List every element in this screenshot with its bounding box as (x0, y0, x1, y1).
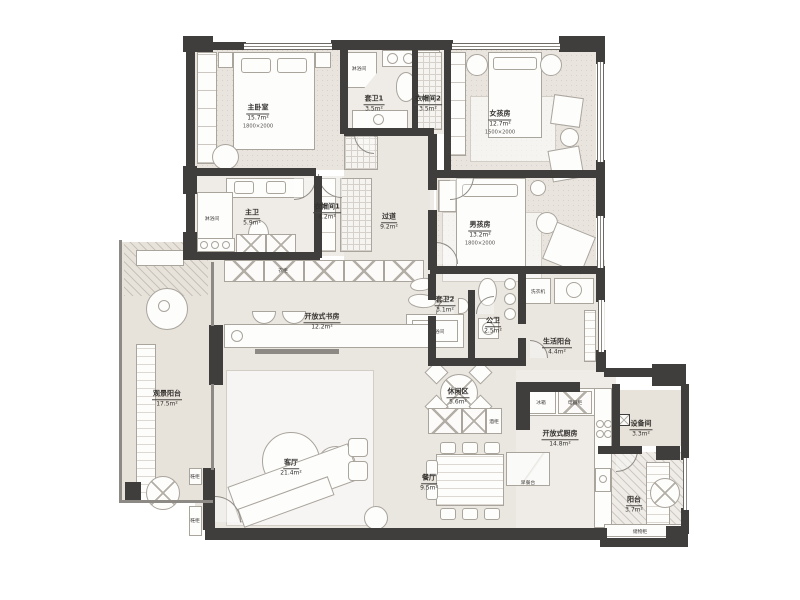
room-label-closet2: 衣帽间2 3.5m² (414, 85, 442, 113)
wall-segment (518, 266, 526, 324)
room-label-girls-room: 女孩房 12.7m² 1500×2000 (482, 101, 518, 136)
pillow (493, 57, 537, 70)
hall-cabinet (304, 260, 344, 282)
wall-segment (516, 382, 580, 392)
dining-table (436, 454, 504, 506)
window-boys-room (597, 216, 604, 268)
ottoman (348, 438, 368, 457)
wall-segment (428, 134, 437, 190)
sideboard (462, 408, 486, 434)
dining-chair (462, 508, 478, 520)
label-hall-cabinet: 衣柜 (278, 266, 288, 273)
balcony-counter (584, 310, 596, 362)
dining-chair (462, 442, 478, 454)
window-master-bedroom (244, 43, 332, 50)
drying-rack (650, 478, 680, 508)
nightstand (315, 52, 331, 68)
wall-segment (468, 290, 475, 360)
label-shower-master: 淋浴间 (205, 214, 219, 221)
shelf-item (504, 293, 516, 305)
label-fridge: 冰箱 (536, 398, 546, 405)
wall-segment (210, 42, 246, 50)
sink-basin (234, 181, 254, 194)
shelf-item (504, 278, 516, 290)
label-shower-ensuite1: 淋浴间 (352, 64, 366, 71)
sink-basin (222, 241, 230, 249)
label-breakfast-bar: 早餐台 (521, 478, 535, 485)
wall-segment (600, 538, 688, 547)
bedside-lamp (530, 180, 546, 196)
kitchen-side-counter (594, 388, 612, 528)
room-label-view-balcony: 观景阳台 17.5m² (152, 380, 182, 408)
lounge-chair (550, 94, 584, 128)
label-shower-ensuite2: 淋浴间 (430, 327, 444, 334)
room-label-balcony: 阳台 3.7m² (625, 486, 643, 514)
room-label-ensuite2: 套卫2 3.1m² (435, 286, 456, 314)
wall-segment (652, 364, 686, 386)
wall-segment (428, 358, 526, 366)
ottoman (348, 461, 368, 481)
monitor-strip (255, 349, 339, 354)
dimension-girls-wall: 1100 (445, 140, 452, 155)
label-storage-cabinet: 储物柜 (633, 527, 647, 534)
balcony-rail (119, 240, 122, 502)
closet1-rack (340, 178, 372, 252)
wardrobe-master (197, 52, 217, 164)
wall-segment (186, 192, 195, 234)
stove-burner (596, 420, 604, 428)
label-wine-cabinet: 酒柜 (489, 417, 499, 424)
armchair (212, 144, 239, 170)
wall-segment (196, 252, 320, 260)
room-label-leisure-area: 休闲区 5.6m² (447, 378, 470, 406)
balcony-rail (119, 500, 213, 503)
wall-bottom (205, 528, 607, 540)
balcony-bench (136, 250, 184, 266)
room-label-open-kitchen: 开放式厨房 14.8m² (542, 420, 579, 448)
pillow (241, 58, 271, 73)
bedside-plant (466, 54, 488, 76)
wall-segment (344, 128, 434, 136)
room-label-master-bedroom: 主卧室 15.7m² 1800×2000 (240, 95, 276, 130)
dining-chair (484, 508, 500, 520)
wall-segment (596, 42, 605, 64)
room-label-open-study: 开放式书房 12.2m² (304, 303, 341, 331)
wall-segment (428, 210, 437, 270)
room-label-dining-room: 餐厅 9.5m² (420, 464, 438, 492)
room-label-hallway: 过道 9.2m² (380, 203, 398, 231)
room-label-service-balcony: 生活阳台 4.4m² (542, 328, 572, 356)
wall-segment (196, 168, 316, 176)
room-label-master-bath: 主卫 5.9m² (243, 199, 261, 227)
side-table (560, 128, 579, 147)
room-label-boys-room: 男孩房 13.2m² 1800×2000 (462, 212, 498, 247)
sideboard (428, 408, 462, 434)
wall-segment (340, 44, 348, 134)
glass-door-track (211, 262, 214, 326)
sink-basin (373, 114, 384, 125)
room-label-ensuite1: 套卫1 3.5m² (364, 85, 385, 113)
dining-chair (440, 442, 456, 454)
stove-burner (596, 430, 604, 438)
wall-pillar (183, 166, 197, 194)
label-shoe-cabinet-1: 鞋柜 (190, 472, 200, 479)
wall-segment (430, 266, 602, 274)
wall-segment (436, 170, 596, 178)
sink-basin (211, 241, 219, 249)
room-label-guest-bath: 公卫 2.5m² (484, 307, 502, 335)
glass-door-track (211, 384, 214, 470)
sink-basin (387, 53, 398, 64)
wall-pillar (125, 482, 141, 502)
room-label-equipment-room: 设备间 3.3m² (630, 410, 653, 438)
stove-burner (604, 420, 612, 428)
window-balcony-side (683, 458, 689, 510)
shelf-item (504, 308, 516, 320)
label-washer: 洗衣机 (531, 287, 545, 294)
floor-lamp (364, 506, 388, 530)
dining-chair (440, 508, 456, 520)
wall-segment (596, 160, 605, 218)
room-label-closet1: 衣帽间1 4.2m² (313, 193, 341, 221)
hall-cabinet (224, 260, 264, 282)
wall-pillar (209, 325, 223, 385)
wall-segment (203, 468, 215, 530)
wall-pillar (183, 232, 197, 260)
dining-chair (484, 442, 500, 454)
stove-burner (604, 430, 612, 438)
window-service-balcony (598, 300, 604, 352)
label-shoe-cabinet-2: 鞋柜 (190, 516, 200, 523)
nightstand (218, 52, 233, 68)
window-girls-room-side (597, 62, 604, 162)
wall-segment (331, 40, 453, 50)
wall-left (186, 42, 195, 168)
room-label-living-room: 客厅 21.4m² (280, 449, 302, 477)
window-girls-room (452, 43, 560, 50)
balcony-plant (146, 476, 180, 510)
desk-lamp (231, 330, 243, 342)
wall-segment (598, 446, 642, 454)
hall-cabinet (344, 260, 384, 282)
sink-drain (599, 475, 607, 483)
sink-basin (200, 241, 208, 249)
wall-segment (612, 384, 620, 446)
laundry-sink (566, 282, 582, 298)
label-appliance-cabinet: 电器柜 (568, 398, 582, 405)
sink-basin (266, 181, 286, 194)
teacup (158, 300, 170, 312)
wall-segment (604, 368, 656, 377)
pillow (277, 58, 307, 73)
wall-segment (681, 384, 689, 460)
floor-plan: 主卧室 15.7m² 1800×2000 套卫1 3.5m² 衣帽间2 3.5m… (0, 0, 800, 600)
bedside-plant (540, 54, 562, 76)
wall-segment (656, 446, 680, 460)
